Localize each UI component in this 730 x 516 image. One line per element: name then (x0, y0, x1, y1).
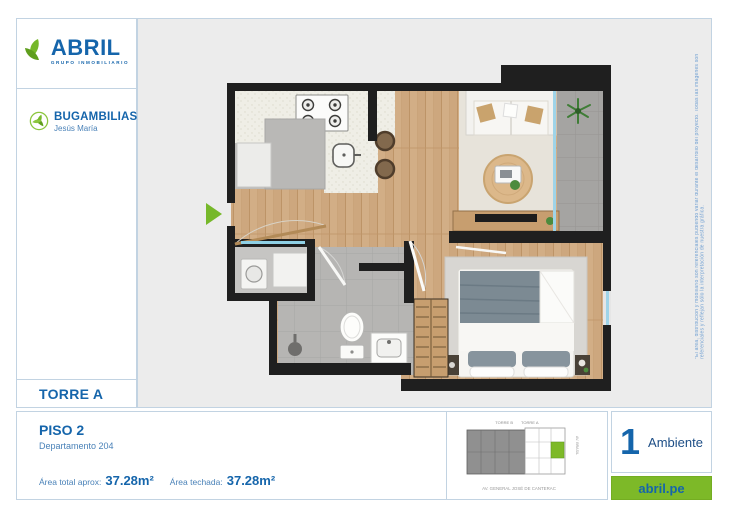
tower-label: TORRE A (17, 386, 103, 402)
rooms-label: Ambiente (648, 435, 703, 450)
bedroom (445, 257, 590, 377)
tv-console (453, 211, 559, 231)
keyplan-map: TORRE B TORRE A AV. BRASIL AV. GENERAL J… (447, 412, 607, 499)
floor-plan (138, 19, 711, 407)
area-covered: Área techada: 37.28m² (170, 473, 275, 488)
plan-area: *El área, distribución y mobiliario son … (137, 18, 712, 408)
keyplan-panel: TORRE B TORRE A AV. BRASIL AV. GENERAL J… (446, 411, 608, 500)
laundry-counter (273, 253, 307, 287)
leaf-icon (24, 38, 48, 69)
keyplan-side-street: AV. BRASIL (575, 436, 579, 455)
apartment-label: Departamento 204 (39, 441, 114, 451)
rooms-count: 1 (620, 424, 640, 460)
keyplan-tower-b-label: TORRE B (495, 420, 513, 425)
sofa (466, 87, 556, 135)
toilet (340, 312, 364, 359)
entry-arrow-icon (206, 203, 222, 225)
tower-box: TORRE A (16, 379, 137, 408)
fridge (237, 143, 271, 187)
unit-info-panel: PISO 2 Departamento 204 Área total aprox… (16, 411, 447, 500)
brand-name: ABRIL (51, 38, 129, 58)
keyplan-building-outline (525, 428, 565, 474)
keyplan-bottom-street: AV. GENERAL JOSÉ DE CANTERAC (482, 486, 556, 491)
project-name: BUGAMBILIAS (54, 111, 137, 123)
area-total: Área total aprox: 37.28m² (39, 473, 154, 488)
washer (241, 259, 267, 289)
brand-logo: ABRIL GRUPO INMOBILIARIO (24, 38, 129, 69)
kitchen-island (265, 119, 325, 189)
keyplan-highlighted-unit (551, 442, 564, 458)
wardrobe (414, 299, 448, 377)
brand-logo-box: ABRIL GRUPO INMOBILIARIO (16, 18, 137, 89)
floorplan-flyer: ABRIL GRUPO INMOBILIARIO BUGAMBILIAS Jes… (0, 0, 730, 516)
living-room (453, 87, 559, 231)
brand-tagline: GRUPO INMOBILIARIO (51, 60, 129, 65)
keyplan-building-dark (467, 430, 525, 474)
keyplan-tower-a-label: TORRE A (521, 420, 539, 425)
website-label: abril.pe (638, 481, 684, 496)
project-box: BUGAMBILIAS Jesús María (16, 88, 137, 380)
bathroom-sink (371, 333, 407, 363)
balcony (557, 69, 604, 231)
project-location: Jesús María (54, 124, 137, 133)
website-link[interactable]: abril.pe (611, 476, 712, 500)
flower-icon (29, 111, 49, 136)
rooms-badge: 1 Ambiente (611, 411, 712, 473)
disclaimer-text: *El área, distribución y mobiliario son … (695, 29, 706, 359)
nightstand-right (575, 355, 590, 375)
floor-title: PISO 2 (39, 422, 84, 438)
bed (458, 269, 574, 377)
